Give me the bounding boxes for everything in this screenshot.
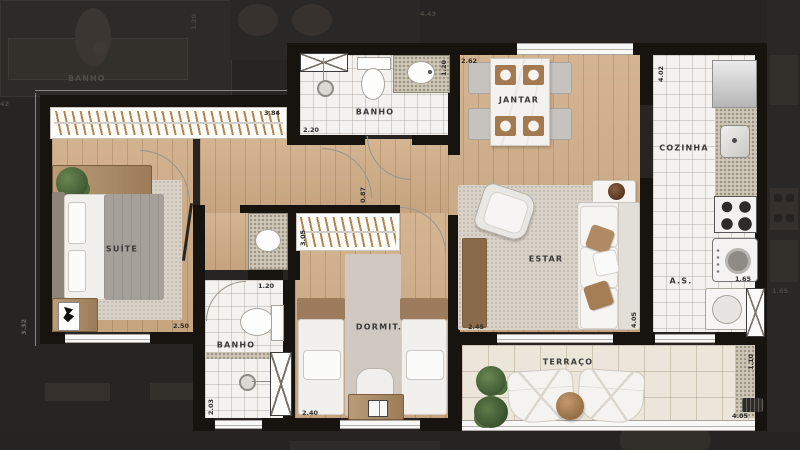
banho1-faucet [428, 70, 432, 74]
bg-dim-right: 1.65 [772, 287, 788, 295]
dim-line-top [35, 90, 290, 91]
bg-dim-left: 3.42 [0, 100, 9, 108]
wall-banho1-bottom-1 [300, 135, 365, 145]
banho2-shaft [270, 352, 292, 416]
banho2-shower-head [239, 374, 256, 391]
wall-banho2-top [248, 270, 283, 280]
bg-basin-1 [238, 4, 278, 36]
dim-suite-width: 2.50 [173, 322, 189, 330]
window-banho2 [215, 420, 262, 429]
wall-terrace-right [755, 345, 767, 431]
dim-suite-height: 3.32 [20, 319, 28, 335]
wall-suite-bottom-1 [40, 332, 65, 344]
wall-top-kitchen [633, 43, 767, 55]
dim-banho1-counter: 1.20 [440, 60, 448, 76]
bg-dim-top-2: 4.43 [420, 10, 436, 18]
dim-terraco-height: 1.10 [747, 354, 755, 370]
bed-pillow-1 [68, 202, 86, 244]
wall-bottom-1 [200, 418, 215, 431]
bg-furniture-4 [290, 441, 440, 450]
banho2-vanity-sink [255, 229, 281, 252]
room-label-suite: SUÍTE [106, 245, 138, 254]
dim-banho1-width: 2.20 [303, 126, 319, 134]
dormit-closet [296, 213, 400, 251]
as-shaft [746, 288, 765, 337]
fridge [712, 60, 757, 108]
wall-hall-dormit [240, 205, 400, 213]
sliding-door-terrace [497, 334, 613, 343]
wall-bottom-3 [420, 418, 460, 431]
kitchen-faucet [732, 138, 737, 143]
room-label-banho2: BANHO [217, 341, 255, 350]
bed-pillow-2 [68, 250, 86, 292]
dim-cozinha-height: 4.02 [657, 66, 665, 82]
door-as-terrace [655, 334, 715, 343]
dim-terraco-width: 4.05 [732, 412, 748, 420]
sofa-pillow-white [592, 249, 620, 277]
dim-banho2-width: 1.20 [258, 282, 274, 290]
dim-suite-closet: 3.84 [264, 109, 280, 117]
floor-plan-image: BANHO 3.42 1.20 4.43 1.65 [0, 0, 800, 450]
placemat-3 [495, 116, 516, 136]
washer-drum [725, 248, 751, 274]
dormit-bed-right [400, 298, 448, 416]
estar-sideboard [462, 238, 487, 328]
bg-furniture-3 [620, 430, 710, 450]
suite-logo-card [58, 302, 80, 331]
bg-toilet [75, 8, 111, 66]
bg-dim-top-1: 1.20 [190, 14, 198, 30]
stove [714, 196, 757, 233]
wall-bottom-2 [262, 418, 340, 431]
dormit-desk [348, 394, 404, 420]
sofa-back [618, 203, 639, 329]
dim-dormit-closet: 3.05 [299, 230, 307, 246]
banho1-toilet-bowl [361, 68, 385, 100]
grill-icon [742, 398, 763, 412]
wall-suite-right [193, 205, 205, 431]
terrace-table [556, 392, 584, 420]
wall-estar-as [640, 178, 653, 345]
room-label-dormit: DORMIT. [356, 323, 402, 332]
dim-dormit-width: 2.40 [302, 409, 318, 417]
placemat-1 [495, 65, 516, 85]
wall-as-terrace-1 [640, 332, 655, 345]
bg-room-label: BANHO [68, 74, 105, 83]
pillow [406, 350, 444, 380]
sofa [577, 202, 640, 330]
room-label-banho1: BANHO [356, 108, 394, 117]
decor-bowl [608, 183, 625, 200]
dim-estar-height: 4.05 [630, 312, 638, 328]
bg-washer [770, 240, 798, 282]
wall-estar-terrace-1 [460, 332, 497, 345]
dim-banho2-height: 2.03 [207, 399, 215, 415]
dim-hall: 0.87 [359, 187, 367, 203]
room-label-cozinha: COZINHA [659, 144, 708, 153]
banho1-shower-box [300, 53, 348, 72]
dim-estar-width: 2.45 [468, 323, 484, 331]
plant-terrace-2 [474, 396, 508, 428]
banho1-shower-hose [323, 58, 324, 82]
wall-estar-terrace-2 [613, 332, 640, 345]
banho2-toilet-tank [271, 305, 284, 341]
banho1-shower-head [317, 80, 334, 97]
washer-knobs [716, 247, 720, 275]
placemat-2 [523, 65, 544, 85]
room-label-terraco: TERRAÇO [543, 358, 594, 367]
wall-kitchen-dining [640, 43, 653, 105]
bg-pendant [93, 42, 107, 56]
suite-closet [50, 107, 287, 139]
window-dormit [340, 420, 420, 429]
bg-stove [770, 188, 798, 230]
bg-basin-2 [292, 4, 332, 36]
window-suite [65, 334, 150, 343]
plant-terrace-1 [476, 366, 506, 396]
dim-jantar-width: 2.62 [461, 57, 477, 65]
floor-hall-nook [200, 213, 248, 270]
placemat-4 [523, 116, 544, 136]
banho2-toilet-bowl [240, 308, 274, 336]
room-label-jantar: JANTAR [499, 96, 539, 105]
bg-furniture-1 [45, 383, 110, 401]
dim-line-left [35, 93, 36, 346]
laundry-tank [705, 288, 748, 330]
bg-fridge [770, 55, 798, 105]
dim-as-width: 1.65 [735, 275, 751, 283]
logo-glyph [62, 306, 75, 323]
room-label-estar: ESTAR [529, 255, 563, 264]
lounge-chair-2 [576, 368, 645, 424]
window-jantar [517, 43, 633, 55]
dormit-bed-left [297, 298, 345, 416]
laptop-icon [368, 400, 388, 417]
room-label-as: A.S. [670, 277, 693, 286]
wall-suite-top [40, 95, 290, 107]
pillow [303, 350, 341, 380]
wall-banho1-left [287, 43, 300, 145]
wall-banho1-bottom-2 [412, 135, 448, 145]
tank-basin [712, 295, 742, 324]
